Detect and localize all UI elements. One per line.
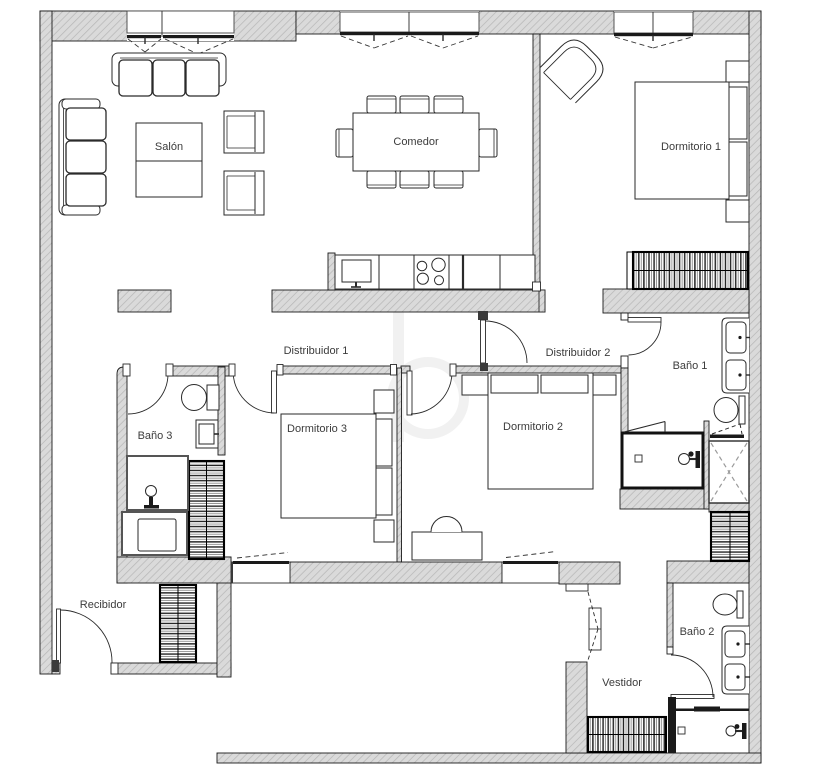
svg-text:Dormitorio 1: Dormitorio 1 [661, 141, 721, 153]
svg-text:Dormitorio 2: Dormitorio 2 [503, 421, 563, 433]
svg-text:Distribuidor 1: Distribuidor 1 [284, 345, 349, 357]
svg-text:Baño 1: Baño 1 [673, 360, 708, 372]
svg-text:Comedor: Comedor [393, 136, 439, 148]
svg-text:Recibidor: Recibidor [80, 599, 127, 611]
svg-text:Dormitorio 3: Dormitorio 3 [287, 423, 347, 435]
svg-text:Baño 2: Baño 2 [680, 626, 715, 638]
svg-text:Distribuidor 2: Distribuidor 2 [546, 347, 611, 359]
svg-text:Salón: Salón [155, 141, 183, 153]
svg-text:Vestidor: Vestidor [602, 677, 642, 689]
svg-text:Baño 3: Baño 3 [138, 430, 173, 442]
